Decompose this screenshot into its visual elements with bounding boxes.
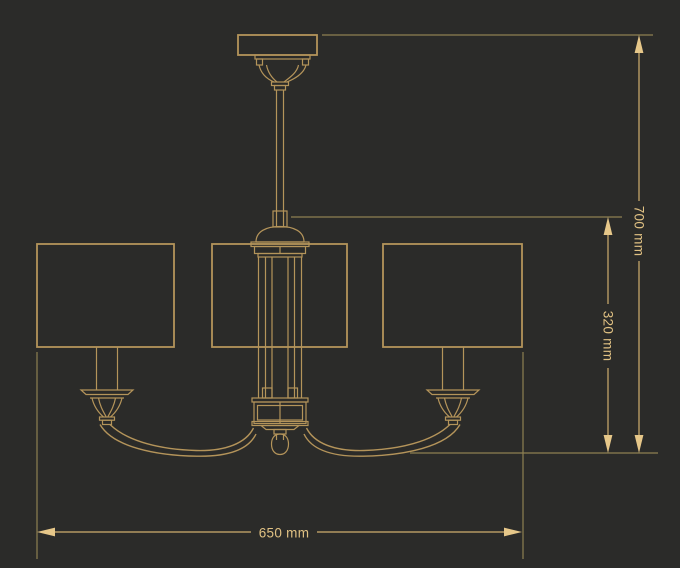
hub-lip (261, 426, 299, 430)
column-rod-block-right (288, 388, 298, 398)
finial-neck (274, 430, 286, 435)
arrow-up-icon (604, 217, 613, 235)
arrow-down-icon (635, 435, 644, 453)
canopy-lip (255, 55, 310, 59)
hub-flange-top (252, 398, 308, 402)
holder-collar-body-left (103, 420, 112, 424)
arrow-down-icon (604, 435, 613, 453)
dimension-arrows (37, 35, 643, 536)
bobeche-dish-left (81, 390, 133, 395)
lamp-shade-center (212, 244, 347, 347)
candle-holder-right (427, 347, 479, 425)
canopy-body (238, 35, 317, 55)
chandelier-dimension-diagram: 650 mm 700 mm 320 mm (0, 0, 680, 568)
arrow-up-icon (635, 35, 644, 53)
dimension-label-width: 650 mm (259, 526, 310, 541)
lamp-shade-left (37, 244, 174, 347)
canopy-yoke-outer-right (287, 65, 306, 82)
column-band-lip (258, 254, 302, 258)
canopy-yoke-inner-left (267, 65, 278, 82)
canopy-collar-body (275, 86, 286, 91)
bobeche-dish-right (427, 390, 479, 395)
technical-drawing-canvas: 650 mm 700 mm 320 mm (0, 0, 680, 568)
center-column (251, 227, 309, 399)
lamp-shade-right (383, 244, 522, 347)
column-rod-block-left (263, 388, 273, 398)
center-hub (252, 398, 308, 455)
arrow-left-icon (37, 528, 55, 537)
ceiling-canopy (238, 35, 317, 90)
rod-coupler (273, 211, 287, 227)
candle-holder-left (81, 347, 133, 425)
finial-bulb (272, 434, 289, 455)
arm-left-lower (100, 425, 256, 457)
column-dome (256, 227, 304, 243)
dimension-label-body-height: 320 mm (601, 311, 616, 362)
hanging-rod (273, 90, 287, 227)
holder-collar-body-right (449, 420, 458, 424)
arm-right-lower (304, 425, 460, 457)
canopy-lip-endcap-left (257, 59, 263, 65)
arrow-right-icon (504, 528, 522, 537)
dimension-label-overall-height: 700 mm (632, 206, 647, 257)
canopy-lip-endcap-right (303, 59, 309, 65)
chandelier-drawing (37, 35, 522, 456)
